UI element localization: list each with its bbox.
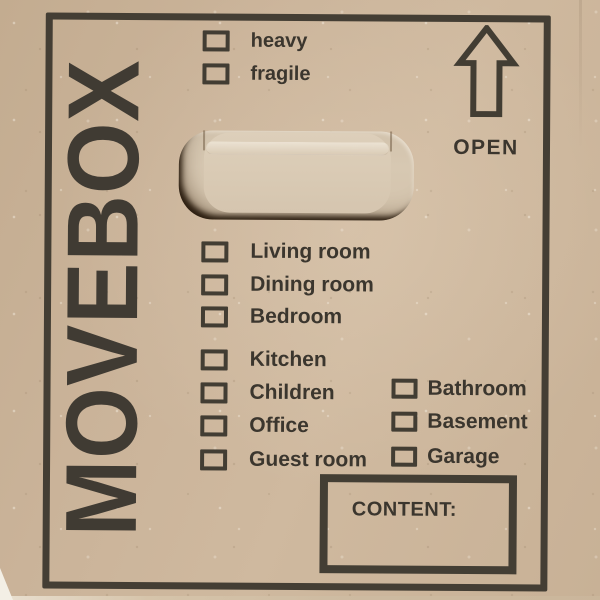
checkbox-label: Children bbox=[249, 381, 334, 406]
checkbox-item-dining-room: Dining room bbox=[201, 272, 374, 297]
open-label: OPEN bbox=[445, 136, 527, 161]
checkbox-icon bbox=[201, 241, 228, 262]
checkbox-item-kitchen: Kitchen bbox=[201, 347, 327, 372]
checkbox-icon bbox=[391, 447, 417, 467]
movebox-logo: MOVEBOX bbox=[51, 27, 155, 568]
checkbox-icon bbox=[203, 30, 230, 51]
checkbox-label: Office bbox=[249, 414, 309, 438]
checkbox-item-children: Children bbox=[200, 380, 334, 405]
checkbox-item-bathroom: Bathroom bbox=[391, 377, 526, 402]
checkbox-label: fragile bbox=[250, 62, 310, 85]
checkbox-item-basement: Basement bbox=[391, 410, 528, 435]
checkbox-icon bbox=[202, 63, 229, 84]
checkbox-item-office: Office bbox=[200, 413, 309, 438]
checkbox-label: Kitchen bbox=[250, 348, 327, 372]
checkbox-item-heavy: heavy bbox=[203, 28, 308, 53]
handle-flap bbox=[204, 132, 391, 213]
cardboard-crease bbox=[579, 0, 582, 150]
checkbox-item-living-room: Living room bbox=[201, 239, 370, 264]
handle-notch bbox=[390, 132, 392, 152]
checkbox-item-guest-room: Guest room bbox=[200, 447, 367, 472]
checkbox-label: Dining room bbox=[250, 273, 374, 298]
checkbox-icon bbox=[391, 412, 417, 432]
checkbox-icon bbox=[200, 415, 227, 436]
moving-box-photo: MOVEBOX heavy fragile OPEN Living room bbox=[0, 0, 600, 600]
checkbox-label: Guest room bbox=[249, 448, 367, 473]
checkbox-icon bbox=[201, 274, 228, 295]
photo-edge bbox=[0, 596, 600, 600]
checkbox-item-bedroom: Bedroom bbox=[201, 304, 342, 329]
checkbox-icon bbox=[391, 379, 417, 399]
content-box: CONTENT: bbox=[319, 474, 517, 574]
checkbox-icon bbox=[201, 306, 228, 327]
checkbox-label: heavy bbox=[251, 29, 308, 52]
checkbox-icon bbox=[201, 349, 228, 370]
checkbox-item-garage: Garage bbox=[391, 445, 500, 470]
open-arrow-icon bbox=[453, 25, 520, 117]
checkbox-label: Bedroom bbox=[250, 305, 342, 330]
checkbox-label: Basement bbox=[427, 410, 528, 435]
checkbox-label: Living room bbox=[250, 240, 370, 265]
box-print-layer: MOVEBOX heavy fragile OPEN Living room bbox=[0, 0, 600, 600]
handle-cutout bbox=[179, 130, 415, 220]
checkbox-icon bbox=[200, 382, 227, 403]
handle-notch bbox=[203, 130, 205, 150]
content-label: CONTENT: bbox=[352, 498, 457, 522]
handle-flap-crease bbox=[206, 141, 389, 155]
checkbox-label: Bathroom bbox=[427, 377, 526, 402]
checkbox-label: Garage bbox=[427, 445, 500, 469]
checkbox-icon bbox=[200, 449, 227, 470]
checkbox-item-fragile: fragile bbox=[202, 61, 310, 86]
